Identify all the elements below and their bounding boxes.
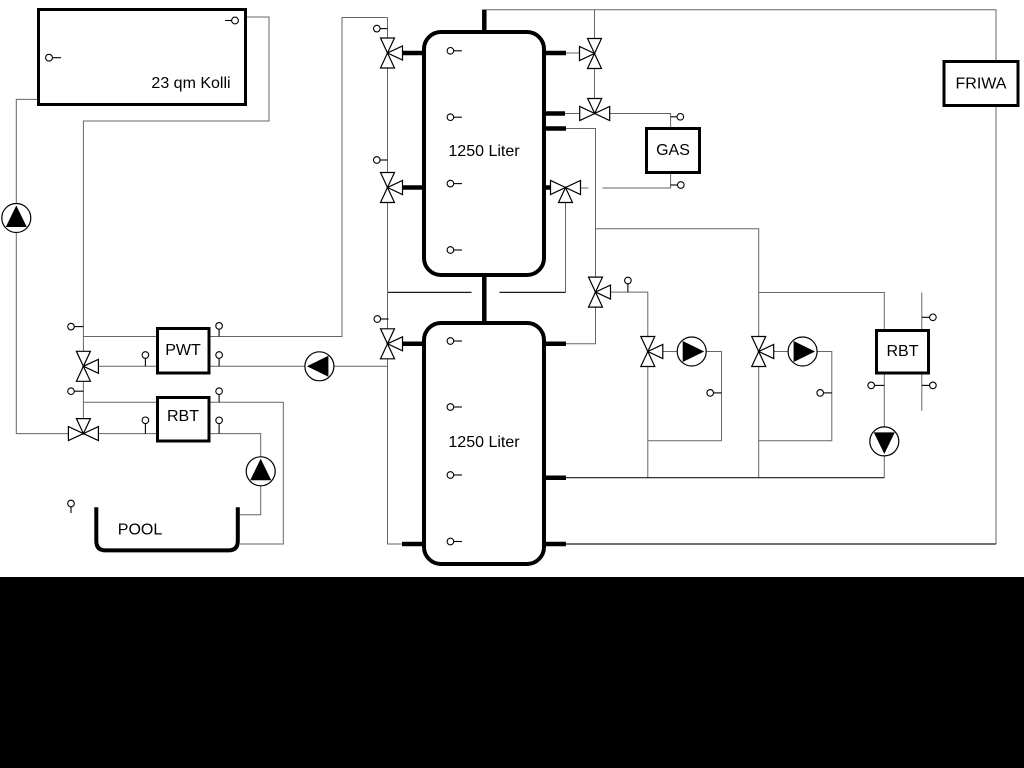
svg-text:PWT: PWT bbox=[165, 342, 201, 359]
svg-text:RBT: RBT bbox=[887, 343, 919, 360]
svg-text:FRIWA: FRIWA bbox=[956, 76, 1007, 93]
svg-text:GAS: GAS bbox=[656, 142, 690, 159]
svg-text:1250 Liter: 1250 Liter bbox=[448, 143, 520, 160]
svg-text:1250 Liter: 1250 Liter bbox=[448, 434, 520, 451]
svg-text:23 qm Kolli: 23 qm Kolli bbox=[151, 75, 230, 92]
svg-text:RBT: RBT bbox=[167, 408, 199, 425]
svg-text:POOL: POOL bbox=[118, 522, 163, 539]
